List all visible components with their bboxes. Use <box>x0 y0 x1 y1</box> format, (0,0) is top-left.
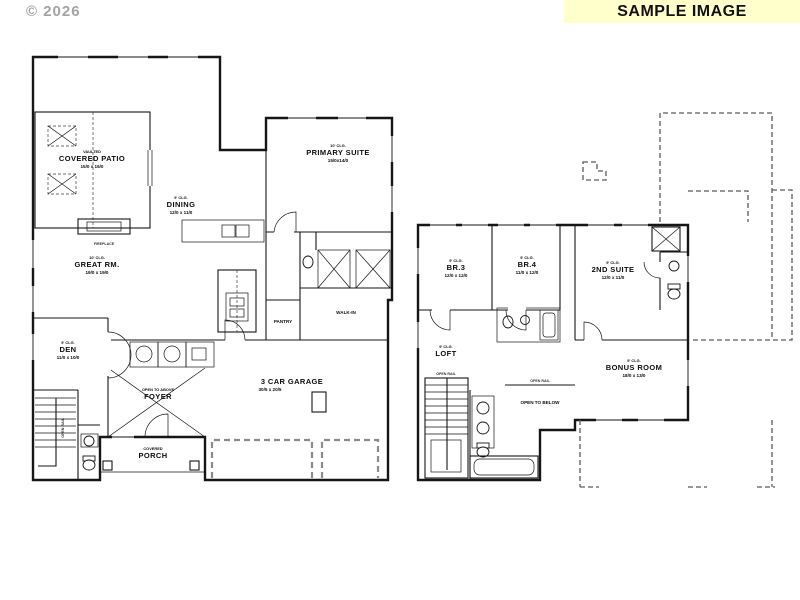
sink-icon <box>669 261 679 271</box>
room-label-loft: 9' CLG. LOFT <box>435 344 456 358</box>
kitchen <box>182 220 264 332</box>
staircase: OPEN RAIL <box>425 372 468 478</box>
svg-text:LOFT: LOFT <box>435 349 456 358</box>
svg-text:3 CAR GARAGE: 3 CAR GARAGE <box>261 377 323 386</box>
roof-outline-dashed <box>580 113 792 487</box>
open-rail-label: OPEN RAIL <box>436 372 456 376</box>
room-label-br4: 9' CLG. BR.4 11/0 x 12/0 <box>516 255 539 275</box>
room-label-porch: COVERED PORCH <box>138 446 167 460</box>
first-floor-plan: FIREPLACE OPEN RAIL <box>33 57 392 480</box>
svg-text:2ND SUITE: 2ND SUITE <box>592 265 635 274</box>
room-label-garage: 3 CAR GARAGE 30/5 x 20/5 <box>259 377 324 392</box>
sink-icon <box>477 422 489 434</box>
svg-text:19/0 x 19/0: 19/0 x 19/0 <box>86 270 109 275</box>
windows <box>418 225 688 420</box>
porch-slab <box>100 461 205 472</box>
room-label-great-rm: 10' CLG. GREAT RM. 19/0 x 19/0 <box>74 255 119 275</box>
second-floor-plan: OPEN RAIL <box>418 113 792 487</box>
toilet-icon <box>83 460 95 470</box>
sink-icon <box>477 402 489 414</box>
room-label-walk-in: WALK-IN <box>336 310 356 315</box>
room-label-pantry: PANTRY <box>274 319 292 324</box>
foyer-open-above-cross <box>108 368 205 437</box>
sink-icon <box>84 436 94 446</box>
svg-text:BR.4: BR.4 <box>518 260 537 269</box>
room-label-primary-suite: 10' CLG. PRIMARY SUITE 15/0x14/0 <box>306 143 370 163</box>
svg-text:DEN: DEN <box>59 345 76 354</box>
toilet-icon <box>303 256 313 268</box>
svg-text:18/0 x 13/0: 18/0 x 13/0 <box>623 373 646 378</box>
garage-doors <box>212 392 378 478</box>
sink-icon <box>222 225 235 237</box>
floor-plan-drawing: FIREPLACE OPEN RAIL <box>0 0 800 600</box>
open-rail-label: OPEN RAIL <box>530 379 550 383</box>
covered-patio: FIREPLACE <box>35 112 150 246</box>
sink-icon <box>521 316 530 325</box>
room-label-br3: 9' CLG. BR.3 12/0 x 12/0 <box>445 258 468 278</box>
svg-text:12/0 x 12/0: 12/0 x 12/0 <box>445 273 468 278</box>
chimney-icon <box>652 227 680 251</box>
room-label-dining: 9' CLG. DINING 12/0 x 11/0 <box>167 195 196 215</box>
room-label-den: 9' CLG. DEN 11/0 x 10/0 <box>57 340 80 360</box>
svg-text:15/0x14/0: 15/0x14/0 <box>328 158 349 163</box>
svg-text:PRIMARY SUITE: PRIMARY SUITE <box>306 148 370 157</box>
room-label-covered-patio: VAULTED COVERED PATIO 15/0 x 16/0 <box>59 149 125 169</box>
skylight-icon <box>48 126 76 146</box>
svg-text:BONUS ROOM: BONUS ROOM <box>606 363 663 372</box>
svg-text:GREAT RM.: GREAT RM. <box>74 260 119 269</box>
fireplace-icon <box>78 219 130 234</box>
svg-text:11/0 x 10/0: 11/0 x 10/0 <box>57 355 80 360</box>
toilet-icon <box>503 316 513 328</box>
door-swings <box>105 150 296 437</box>
room-label-bonus-room: 9' CLG. BONUS ROOM 18/0 x 13/0 <box>606 358 663 378</box>
skylight-icon <box>48 174 76 194</box>
water-heater-icon <box>312 392 326 412</box>
first-floor-interior-walls <box>33 150 392 480</box>
primary-bath-fixtures <box>303 250 390 288</box>
room-label-foyer: OPEN TO ABOVE FOYER <box>142 387 175 401</box>
svg-text:12/0 x 11/0: 12/0 x 11/0 <box>170 210 193 215</box>
svg-text:12/0 x 11/0: 12/0 x 11/0 <box>602 275 625 280</box>
washer-icon <box>136 346 152 362</box>
upstairs-bath-fixtures <box>470 396 538 478</box>
fireplace-label: FIREPLACE <box>94 242 115 246</box>
staircase: OPEN RAIL <box>35 398 76 466</box>
svg-text:15/0 x 16/0: 15/0 x 16/0 <box>81 164 104 169</box>
powder-room-fixtures <box>81 434 98 470</box>
open-rail-label: OPEN RAIL <box>61 417 65 437</box>
svg-text:COVERED PATIO: COVERED PATIO <box>59 154 125 163</box>
svg-text:PORCH: PORCH <box>138 451 167 460</box>
laundry-cabinets <box>130 342 214 367</box>
sink-icon <box>236 225 249 237</box>
svg-text:DINING: DINING <box>167 200 196 209</box>
windows <box>33 57 392 437</box>
svg-text:FOYER: FOYER <box>144 392 172 401</box>
svg-text:11/0 x 12/0: 11/0 x 12/0 <box>516 270 539 275</box>
dryer-icon <box>164 346 180 362</box>
room-label-2nd-suite: 9' CLG. 2ND SUITE 12/0 x 11/0 <box>592 260 635 280</box>
svg-text:BR.3: BR.3 <box>447 263 466 272</box>
utility-sink-icon <box>192 348 206 360</box>
toilet-icon <box>668 289 680 299</box>
suite-bath-fixtures <box>668 261 680 299</box>
open-to-below-label: OPEN TO BELOW <box>521 400 561 405</box>
svg-text:30/5 x 20/5: 30/5 x 20/5 <box>259 387 282 392</box>
